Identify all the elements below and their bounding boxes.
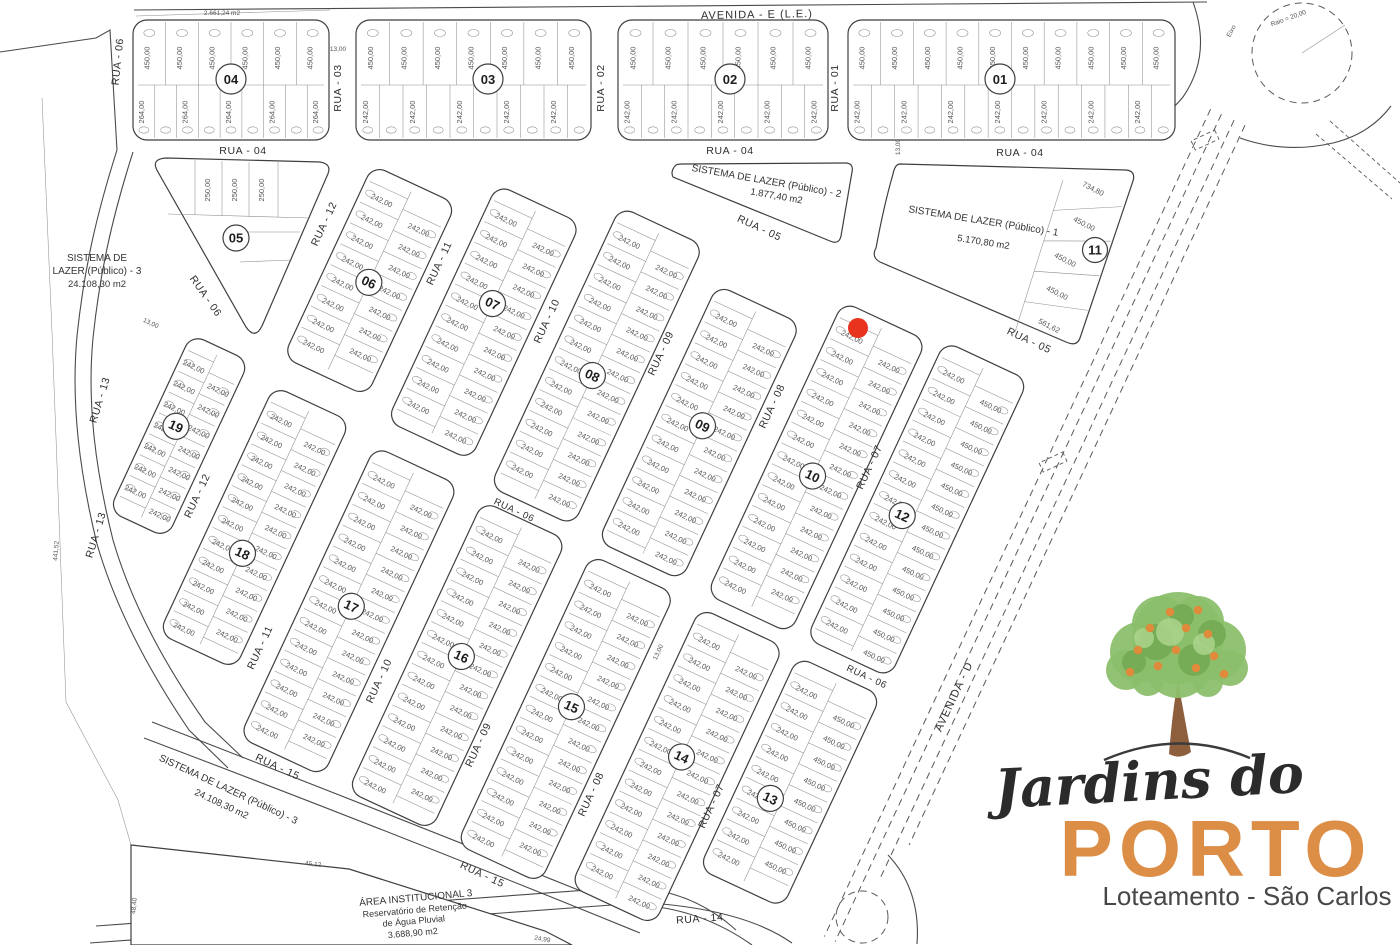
lot-area-label: 250,00 bbox=[230, 179, 239, 202]
tree-icon bbox=[1104, 592, 1250, 760]
lot-area-label: 242,00 bbox=[361, 101, 370, 124]
lot-area-label: 450,00 bbox=[629, 47, 638, 70]
lot-area-label: 264,00 bbox=[268, 101, 277, 124]
lot-area-label: 450,00 bbox=[923, 47, 932, 70]
lot-area-label: 242,00 bbox=[1086, 101, 1095, 124]
rua06-label: RUA - 06 bbox=[110, 37, 127, 85]
site-plan-page: AVENIDA - D Raio = 20,00 Eixo AVENIDA - … bbox=[0, 0, 1400, 945]
leisure-3-title: LAZER (Público) - 3 bbox=[53, 266, 142, 277]
lot-area-label: 450,00 bbox=[769, 47, 778, 70]
rua04-label: RUA - 04 bbox=[219, 145, 266, 157]
lot-area-label: 242,00 bbox=[408, 101, 417, 124]
lot-area-label: 242,00 bbox=[502, 101, 511, 124]
lot-area-label: 242,00 bbox=[455, 101, 464, 124]
lot-area-label: 450,00 bbox=[1021, 47, 1030, 70]
lot-area-label: 450,00 bbox=[467, 47, 476, 70]
fruit-dot bbox=[1192, 664, 1201, 673]
roundabout-edge bbox=[888, 855, 917, 944]
lot-area-label: 242,00 bbox=[549, 101, 558, 124]
lot-area-label: 450,00 bbox=[208, 47, 217, 70]
rua03-label: RUA - 03 bbox=[332, 64, 344, 111]
street-width-dim: 13,00 bbox=[652, 643, 665, 661]
lot-area-label: 242,00 bbox=[946, 101, 955, 124]
block04-total-area: 2.661,24 m2 bbox=[204, 10, 241, 17]
lot-area-label: 450,00 bbox=[1086, 47, 1095, 70]
lot-area-label: 450,00 bbox=[534, 47, 543, 70]
logo: Jardins do PORTO Loteamento - São Carlos bbox=[984, 592, 1392, 911]
lot-area-label: 450,00 bbox=[1119, 47, 1128, 70]
lot-area-label: 450,00 bbox=[567, 47, 576, 70]
foliage-blob bbox=[1156, 618, 1184, 646]
lot-area-label: 242,00 bbox=[809, 101, 818, 124]
lot-area-label: 242,00 bbox=[623, 101, 632, 124]
boundary-dim: 441,52 bbox=[52, 540, 60, 561]
lot-area-label: 450,00 bbox=[955, 47, 964, 70]
roundabout-edge bbox=[1240, 106, 1391, 147]
lot-area-label: 450,00 bbox=[366, 47, 375, 70]
fruit-dot bbox=[1182, 624, 1191, 633]
fruit-dot bbox=[1194, 606, 1203, 615]
logo-subtitle-text: Loteamento - São Carlos bbox=[1102, 881, 1391, 911]
block-number: 11 bbox=[1088, 243, 1102, 258]
block-02: 450,00450,00450,00450,00450,00450,00242,… bbox=[618, 20, 828, 140]
block-number: 04 bbox=[224, 72, 239, 87]
lot-area-label: 242,00 bbox=[853, 101, 862, 124]
lot-area-label: 450,00 bbox=[890, 47, 899, 70]
block-04: 450,00450,00450,00450,00450,00450,00264,… bbox=[133, 20, 329, 140]
lot-area-label: 242,00 bbox=[1040, 101, 1049, 124]
lot-area-label: 450,00 bbox=[699, 47, 708, 70]
rua04-label: RUA - 04 bbox=[706, 145, 753, 157]
fruit-dot bbox=[1172, 646, 1181, 655]
fruit-dot bbox=[1210, 652, 1219, 661]
blocks-01-04: 450,00450,00450,00450,00450,00450,00264,… bbox=[133, 20, 1175, 140]
fruit-dot bbox=[1204, 630, 1213, 639]
fruit-dot bbox=[1154, 662, 1163, 671]
lot-area-label: 264,00 bbox=[311, 101, 320, 124]
lot-area-label: 450,00 bbox=[804, 47, 813, 70]
block-number: 02 bbox=[723, 72, 737, 87]
block-number: 05 bbox=[229, 231, 243, 246]
lot-area-label: 450,00 bbox=[433, 47, 442, 70]
lot-area-label: 264,00 bbox=[180, 101, 189, 124]
block-number: 01 bbox=[993, 72, 1007, 87]
foliage-blob bbox=[1193, 633, 1215, 655]
fruit-dot bbox=[1166, 608, 1175, 617]
rua04-label: RUA - 04 bbox=[996, 147, 1043, 159]
lot-area-label: 450,00 bbox=[1152, 47, 1161, 70]
rua13-label: RUA - 13 bbox=[83, 511, 108, 560]
lot-area-label: 450,00 bbox=[273, 47, 282, 70]
roundabout-circle bbox=[836, 891, 888, 943]
lot-area-label: 242,00 bbox=[716, 101, 725, 124]
block-05: 250,00 250,00 250,00 05 bbox=[155, 158, 329, 333]
leisure-3-area: 24.108,30 m2 bbox=[68, 279, 126, 290]
lot-area-label: 242,00 bbox=[1133, 101, 1142, 124]
fruit-dot bbox=[1134, 646, 1143, 655]
lot-area-label: 242,00 bbox=[763, 101, 772, 124]
leisure-area-1-and-block-11: SISTEMA DE LAZER (Público) - 1 5.170,80 … bbox=[874, 164, 1133, 344]
block-01: 450,00450,00450,00450,00450,00450,00450,… bbox=[848, 20, 1175, 140]
rua06-label: RUA - 06 bbox=[187, 273, 224, 319]
lot-area-label: 242,00 bbox=[993, 101, 1002, 124]
lot-area-label: 450,00 bbox=[857, 47, 866, 70]
lot-area-label: 450,00 bbox=[500, 47, 509, 70]
dim-label: 48,40 bbox=[130, 897, 138, 914]
fruit-dot bbox=[1146, 624, 1155, 633]
lot-area-label: 242,00 bbox=[669, 101, 678, 124]
lot-area-label: 450,00 bbox=[240, 47, 249, 70]
lot-area-label: 450,00 bbox=[306, 47, 315, 70]
fruit-dot bbox=[1126, 668, 1135, 677]
lot-area-label: 450,00 bbox=[399, 47, 408, 70]
avenue-e-line bbox=[134, 2, 1207, 10]
leisure-area-3-left: SISTEMA DE LAZER (Público) - 3 24.108,30… bbox=[53, 253, 142, 290]
radius-line bbox=[1302, 25, 1345, 53]
lot-area-label: 450,00 bbox=[175, 47, 184, 70]
leisure-3-title: SISTEMA DE bbox=[67, 253, 127, 264]
lot-area-label: 450,00 bbox=[142, 47, 151, 70]
street-width-dim: 13,00 bbox=[142, 317, 160, 330]
avenue-d-label: AVENIDA - D bbox=[933, 660, 976, 734]
tree-canopy bbox=[1106, 592, 1248, 698]
lot-area-label: 264,00 bbox=[224, 101, 233, 124]
lot-area-label: 450,00 bbox=[664, 47, 673, 70]
block-number: 03 bbox=[481, 72, 495, 87]
street-width-dim: 13,00 bbox=[330, 46, 347, 53]
rua02-label: RUA - 02 bbox=[595, 64, 607, 111]
logo-brand-text: PORTO bbox=[1059, 804, 1372, 893]
axis-label: Eixo bbox=[1226, 24, 1238, 39]
lot-area-label: 264,00 bbox=[137, 101, 146, 124]
rua01-label: RUA - 01 bbox=[829, 64, 841, 111]
fruit-dot bbox=[1220, 670, 1229, 679]
radius-label: Raio = 20,00 bbox=[1270, 9, 1308, 28]
lot-area-label: 450,00 bbox=[1054, 47, 1063, 70]
block-03: 450,00450,00450,00450,00450,00450,00450,… bbox=[356, 20, 591, 140]
street-width-dim: 13,00 bbox=[895, 138, 902, 155]
lot-area-label: 250,00 bbox=[257, 179, 266, 202]
location-marker[interactable] bbox=[848, 318, 868, 338]
exit-road bbox=[1316, 134, 1392, 199]
lot-area-label: 242,00 bbox=[899, 101, 908, 124]
foliage-blob bbox=[1122, 650, 1146, 674]
crosswalk-marker bbox=[1191, 130, 1219, 150]
subdivision-map: AVENIDA - D Raio = 20,00 Eixo AVENIDA - … bbox=[0, 0, 1400, 945]
property-boundary bbox=[42, 98, 131, 845]
lot-area-label: 250,00 bbox=[203, 179, 212, 202]
